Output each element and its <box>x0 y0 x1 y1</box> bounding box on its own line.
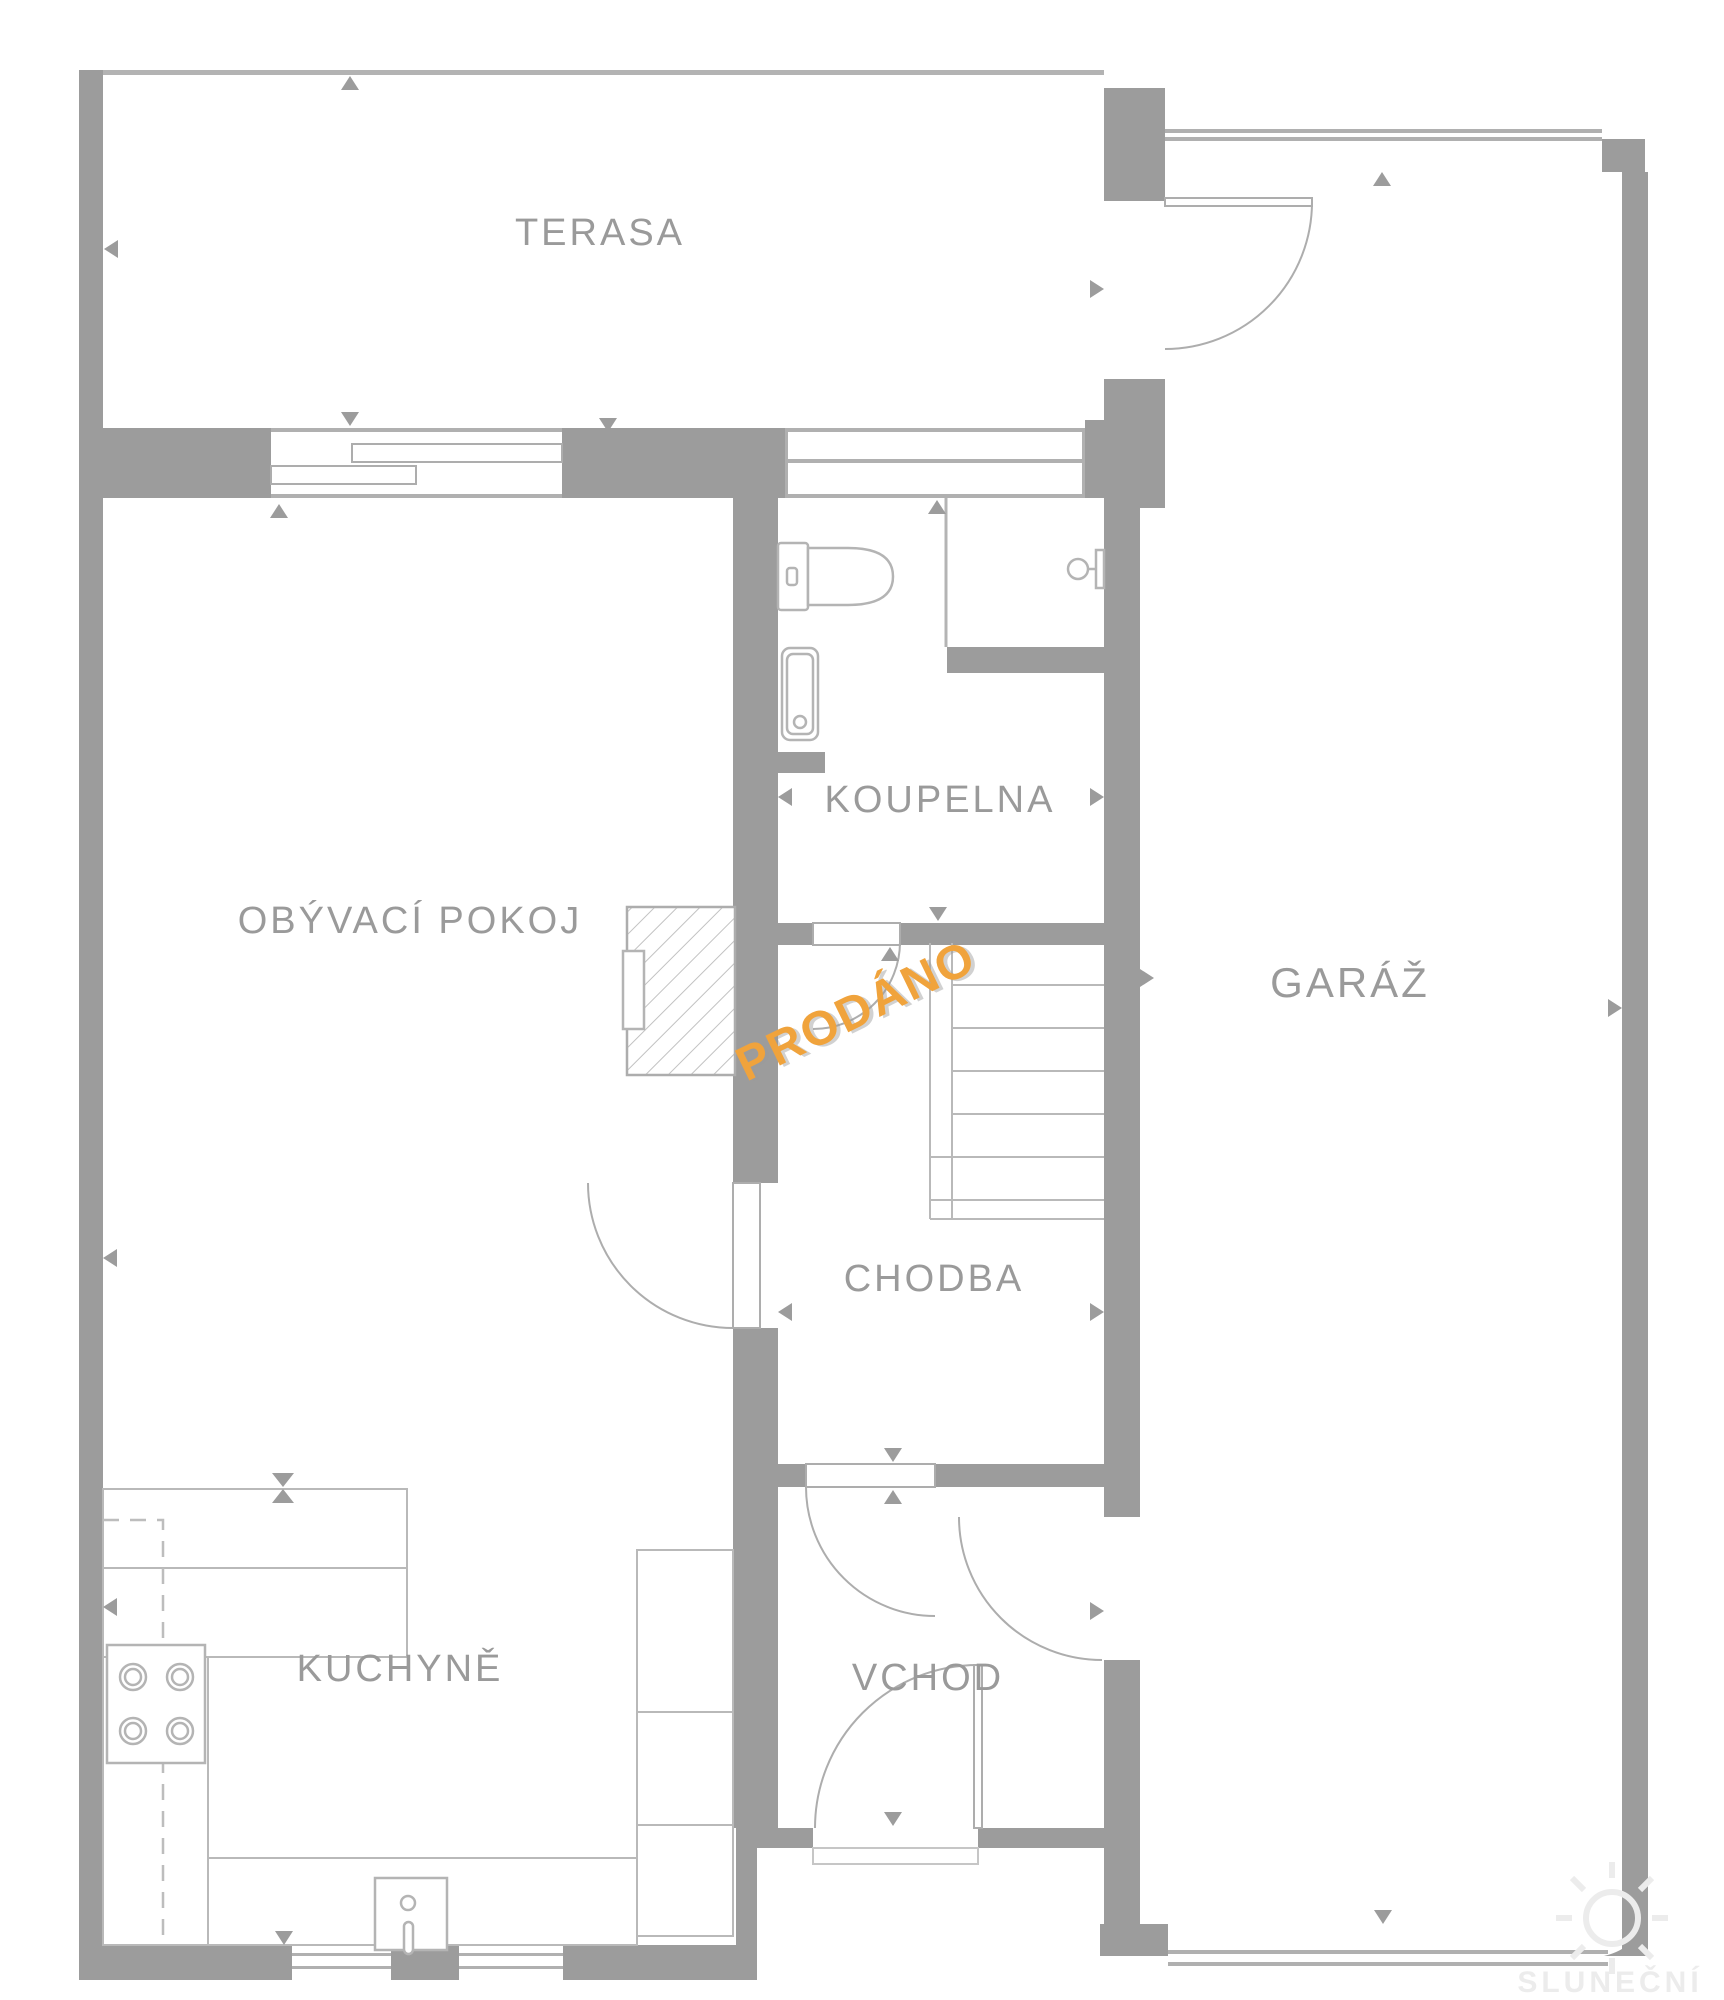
wall-left-outer <box>79 70 103 1980</box>
shower-icon <box>1068 550 1104 588</box>
wall-terrace-bottom-left <box>103 428 271 498</box>
room-label-kuchyne: KUCHYNĚ <box>297 1647 504 1690</box>
fixtures <box>103 498 1104 1954</box>
wall-garage-topright-block <box>1602 139 1645 172</box>
watermark: SLUNEČNÍ REALITY <box>1517 1862 1702 2000</box>
dim-arrow-up <box>884 1490 902 1504</box>
door-living-chodba <box>588 1183 760 1328</box>
dim-arrow-right <box>1140 969 1154 987</box>
dim-arrow-right <box>1608 999 1622 1017</box>
bathroom-window <box>785 428 1085 498</box>
dim-arrow-right <box>1090 280 1104 298</box>
dim-arrow-up <box>928 500 946 514</box>
dim-arrow-down <box>272 1473 294 1487</box>
door-chodba-vchod <box>806 1464 935 1616</box>
watermark-line1: SLUNEČNÍ <box>1517 1965 1702 1999</box>
wall-garage-bottom-left <box>1100 1924 1168 1956</box>
dim-arrow-left <box>104 240 118 258</box>
dim-arrow-left <box>103 1249 117 1267</box>
sun-logo-icon <box>1556 1862 1668 1974</box>
wall-garage-left-midblock <box>1104 379 1165 508</box>
room-label-vchod: VCHOD <box>852 1657 1004 1699</box>
wall-bath-bottom-right <box>900 923 1104 945</box>
sliding-door <box>271 428 562 498</box>
wall-strip-left-lower <box>733 1328 778 1828</box>
washbasin-icon <box>782 648 818 740</box>
dim-arrow-down <box>884 1812 902 1826</box>
wall-garage-right <box>1622 172 1648 1956</box>
floor-plan-canvas: TERASA OBÝVACÍ POKOJ KOUPELNA GARÁŽ CHOD… <box>0 0 1724 2000</box>
dim-arrow-right <box>1090 1303 1104 1321</box>
room-label-obyvaci: OBÝVACÍ POKOJ <box>238 899 582 942</box>
garage-door-top <box>1165 129 1602 141</box>
wall-garage-left-lower <box>1104 1660 1140 1926</box>
dim-arrow-down <box>929 907 947 921</box>
dim-arrow-up <box>341 76 359 90</box>
dim-arrow-left <box>778 788 792 806</box>
wall-bottom-3 <box>563 1945 757 1980</box>
kitchen-sink-icon <box>375 1878 447 1954</box>
dim-arrow-up <box>881 947 899 961</box>
dim-arrow-left <box>778 1303 792 1321</box>
wall-recess-leg <box>736 1828 757 1945</box>
wall-vchod-right <box>978 1828 1104 1848</box>
toilet-icon <box>778 543 893 610</box>
wall-bath-bottom-left <box>778 923 813 945</box>
fireplace-hatch <box>623 907 735 1075</box>
dim-arrow-down <box>884 1448 902 1462</box>
wall-chodba-bottom-left <box>733 1464 806 1487</box>
dim-arrow-up <box>1373 172 1391 186</box>
dim-arrow-down <box>341 412 359 426</box>
dim-arrow-right <box>1090 788 1104 806</box>
wall-bath-stub <box>775 752 825 773</box>
room-label-terasa: TERASA <box>515 212 685 254</box>
wall-garage-left-upper <box>1104 508 1140 1517</box>
room-label-garaz: GARÁŽ <box>1270 959 1430 1006</box>
kitchen-window-right <box>459 1945 563 1980</box>
floor-plan: TERASA OBÝVACÍ POKOJ KOUPELNA GARÁŽ CHOD… <box>0 0 1724 2000</box>
room-label-chodba: CHODBA <box>844 1258 1025 1300</box>
garage-bottom-edge <box>1168 1950 1608 1966</box>
windows <box>271 129 1608 1980</box>
door-vchod-garage <box>959 1517 1102 1660</box>
wall-vchod-left <box>757 1828 813 1848</box>
stove-icon <box>107 1645 205 1763</box>
dim-arrow-up <box>270 504 288 518</box>
door-terrace-garage <box>1165 198 1312 349</box>
room-label-koupelna: KOUPELNA <box>825 779 1056 821</box>
dim-arrow-right <box>1090 1602 1104 1620</box>
wall-terrace-bottom-right <box>562 428 785 498</box>
wall-garage-left-topblock <box>1104 88 1165 201</box>
terrace-top-edge <box>103 70 1104 75</box>
wall-bottom-1 <box>81 1945 292 1980</box>
dim-arrow-down <box>1374 1910 1392 1924</box>
entrance-threshold <box>813 1848 978 1864</box>
